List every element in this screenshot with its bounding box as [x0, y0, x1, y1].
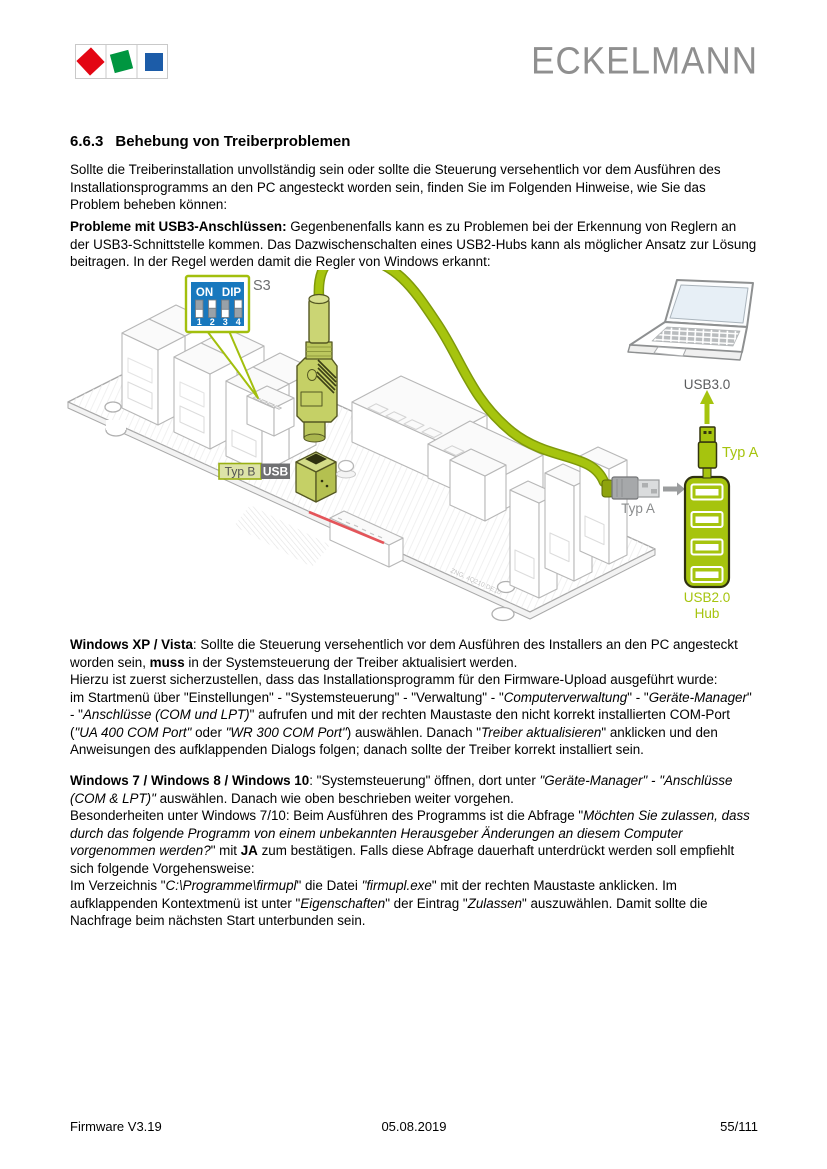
footer-page-number: 55/111 — [720, 1119, 758, 1134]
usb-b-plug — [297, 295, 337, 443]
paragraph-usb3-problems: Probleme mit USB3-Anschlüssen: Gegenbene… — [70, 218, 758, 271]
hub-label-line1: USB2.0 — [684, 590, 731, 605]
svg-text:4: 4 — [236, 317, 241, 327]
laptop-screen — [670, 285, 748, 323]
section-number: 6.6.3 — [70, 133, 103, 150]
typ-a-label-green: Typ A — [722, 445, 759, 461]
typ-b-label: Typ B — [225, 465, 256, 479]
circuit-board: ZNG. 4Q210 DE10 — [68, 305, 655, 621]
section-title: Behebung von Treiberproblemen — [115, 133, 350, 150]
usb-label: USB — [263, 465, 289, 479]
paragraph-intro: Sollte die Treiberinstallation unvollstä… — [70, 161, 758, 214]
s3-ref-label: S3 — [253, 278, 271, 294]
typ-a-label-gray: Typ A — [621, 501, 655, 516]
typ-a-connector-green: Typ A — [699, 427, 759, 478]
usb-hub: USB2.0 Hub — [684, 477, 731, 621]
brand-wordmark: ECKELMANN — [458, 40, 758, 83]
eckelmann-logo-mark — [75, 44, 168, 79]
section-heading: 6.6.3Behebung von Treiberproblemen — [70, 133, 760, 150]
dip-dip-label: DIP — [222, 287, 242, 299]
up-arrow-icon — [700, 390, 714, 424]
svg-text:3: 3 — [223, 317, 228, 327]
right-arrow-icon — [663, 483, 685, 496]
typ-b-usb-labels: Typ B USB — [219, 464, 290, 480]
paragraph-windows-xp-vista: Windows XP / Vista: Sollte die Steuerung… — [70, 636, 758, 759]
footer-date: 05.08.2019 — [70, 1119, 758, 1134]
hub-label-line2: Hub — [695, 606, 720, 621]
laptop: USB3.0 — [628, 280, 753, 392]
logo-blue-square — [145, 53, 163, 71]
svg-text:2: 2 — [210, 317, 215, 327]
usb3-label: USB3.0 — [684, 377, 731, 392]
dip-on-label: ON — [196, 287, 213, 299]
paragraph-windows-7-8-10: Windows 7 / Windows 8 / Windows 10: "Sys… — [70, 772, 758, 930]
document-page: ECKELMANN 6.6.3Behebung von Treiberprobl… — [0, 0, 827, 1169]
usb-connection-diagram: ZNG. 4Q210 DE10 — [0, 270, 827, 640]
svg-text:1: 1 — [197, 317, 202, 327]
